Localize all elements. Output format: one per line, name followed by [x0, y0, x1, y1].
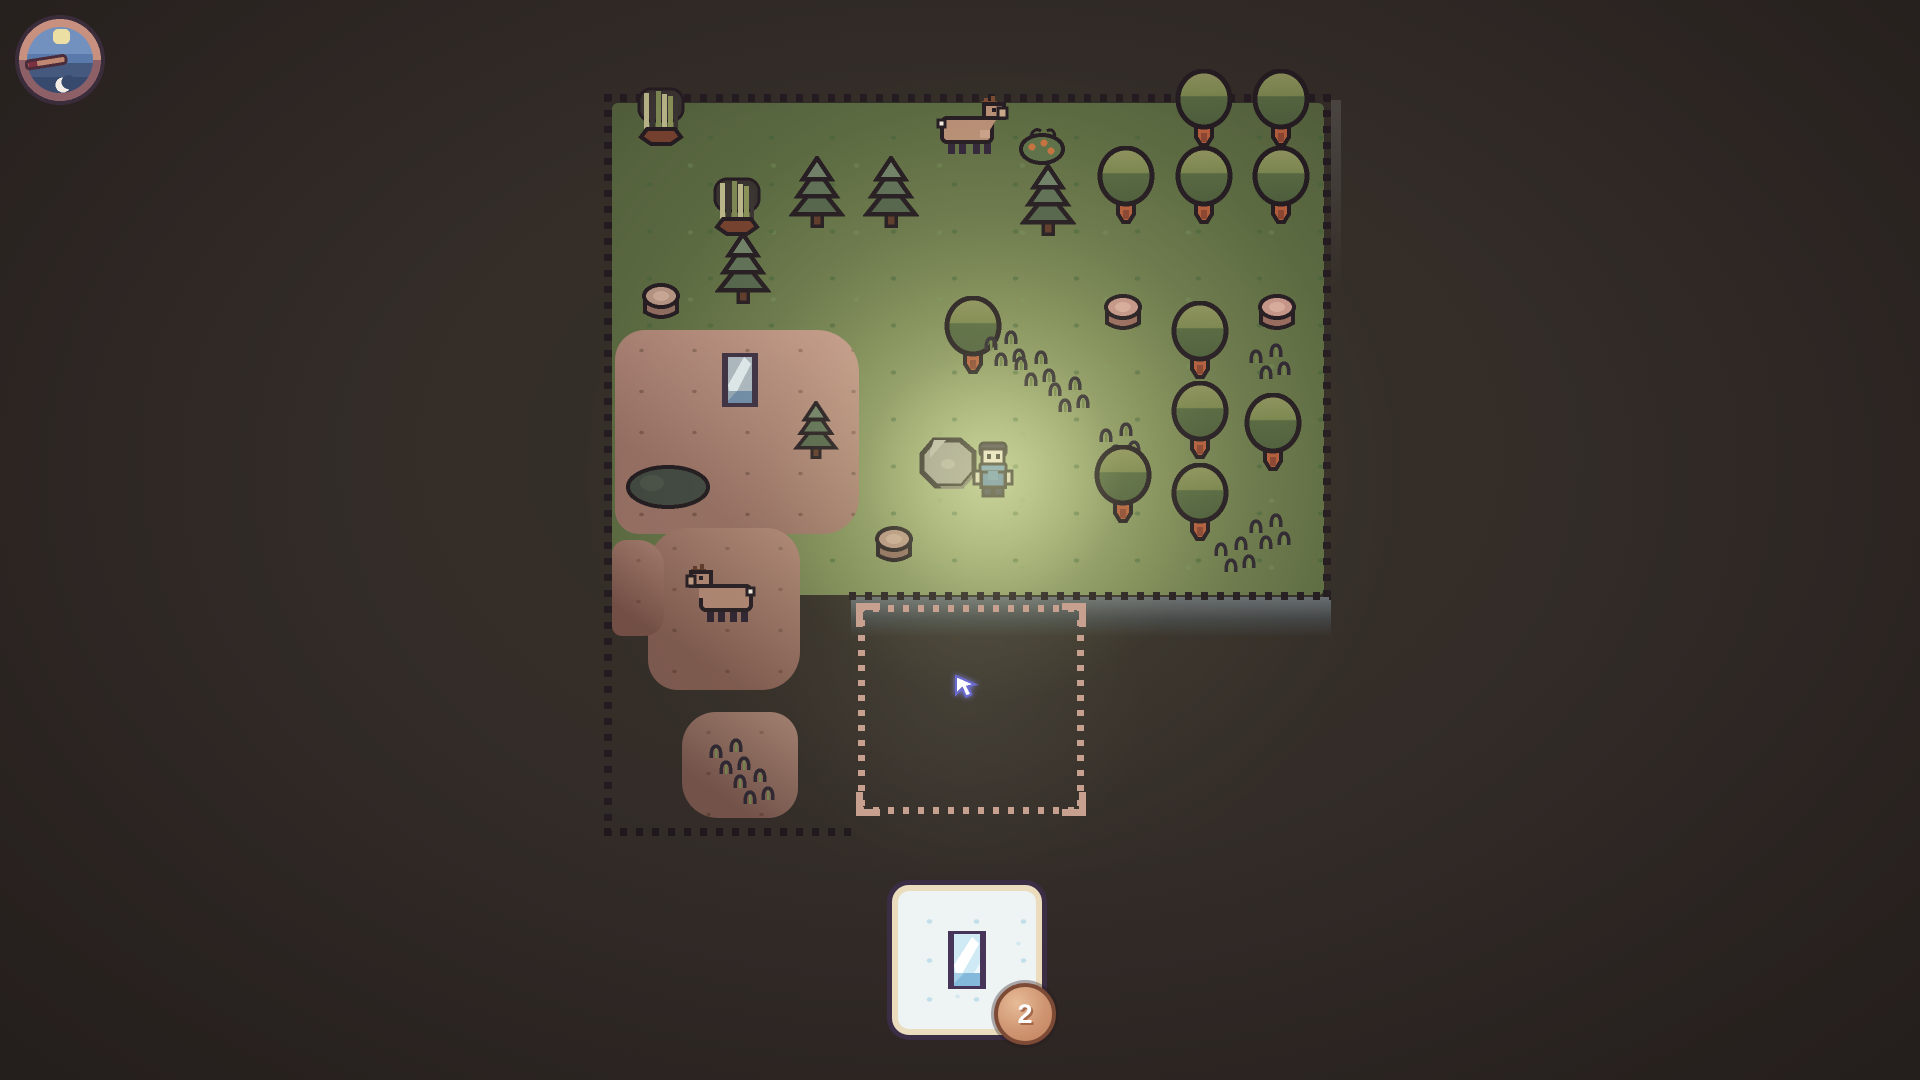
chunk-border: [604, 828, 858, 836]
chunk-border: [849, 592, 1331, 600]
placement-edge-left: [858, 605, 865, 814]
game-screen: 2: [0, 0, 1920, 1080]
placement-edge-top: [858, 605, 1084, 612]
day-night-clock: [14, 14, 106, 111]
item-count: 2: [1017, 999, 1032, 1030]
chunk-border: [1323, 94, 1331, 606]
chunk-border: [604, 94, 612, 836]
placement-edge-right: [1077, 605, 1084, 814]
item-count-badge: 2: [994, 983, 1056, 1045]
placement-edge-bottom: [858, 807, 1084, 814]
pink-blob: [648, 528, 800, 690]
glass-pane-icon: [944, 929, 990, 991]
placement-corner: [1062, 792, 1086, 816]
pink-blob: [615, 330, 859, 534]
pink-blob: [682, 712, 798, 818]
placement-corner: [856, 792, 880, 816]
placement-target-square[interactable]: [858, 605, 1084, 814]
placement-corner: [856, 603, 880, 627]
inventory-item-card[interactable]: 2: [887, 880, 1047, 1040]
sun-icon: [53, 29, 70, 44]
cliff-strip: [1331, 100, 1341, 290]
cursor-icon: [950, 670, 982, 702]
pink-blob: [612, 540, 664, 636]
placement-corner: [1062, 603, 1086, 627]
chunk-border: [604, 94, 1340, 102]
